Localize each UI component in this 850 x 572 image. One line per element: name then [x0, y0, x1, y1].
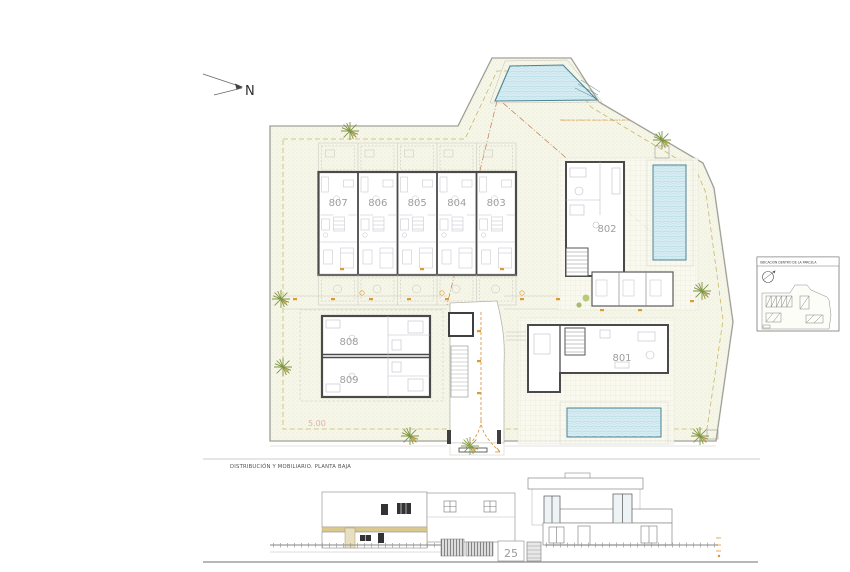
unit-label-807: 807 [329, 198, 348, 209]
duplex-block-808-809: 808 809 [300, 310, 443, 401]
unit-label-801: 801 [612, 353, 631, 364]
unit-label-802: 802 [597, 224, 616, 235]
pool-fence-note: Vallado de protección del recinto. Altur… [560, 118, 630, 122]
plan-title: DISTRIBUCIÓN Y MOBILIARIO. PLANTA BAJA [230, 463, 351, 470]
north-letter: N [245, 84, 255, 99]
unit-label-808: 808 [339, 337, 358, 348]
architectural-drawing-canvas: 807 806 805 804 803 808 809 802 [0, 0, 850, 572]
unit-label-809: 809 [339, 375, 358, 386]
central-driveway [447, 301, 504, 455]
pool-villa-802 [653, 165, 686, 260]
north-arrow: N [203, 74, 255, 99]
elevation-left: 25 [270, 492, 524, 561]
elevation-right [527, 473, 721, 561]
location-key-map: UBICACIÓN DENTRO DE LA PARCELA [757, 257, 839, 331]
unit-label-804: 804 [447, 198, 466, 209]
street-number: 25 [504, 547, 518, 560]
unit-label-803: 803 [487, 198, 506, 209]
dimension-5m: 5.00 [308, 419, 326, 428]
unit-label-806: 806 [368, 198, 387, 209]
pool-villa-801 [567, 408, 661, 437]
site-plan-drawing: 807 806 805 804 803 808 809 802 [0, 0, 850, 572]
key-map-title: UBICACIÓN DENTRO DE LA PARCELA [760, 260, 817, 265]
unit-label-805: 805 [408, 198, 427, 209]
